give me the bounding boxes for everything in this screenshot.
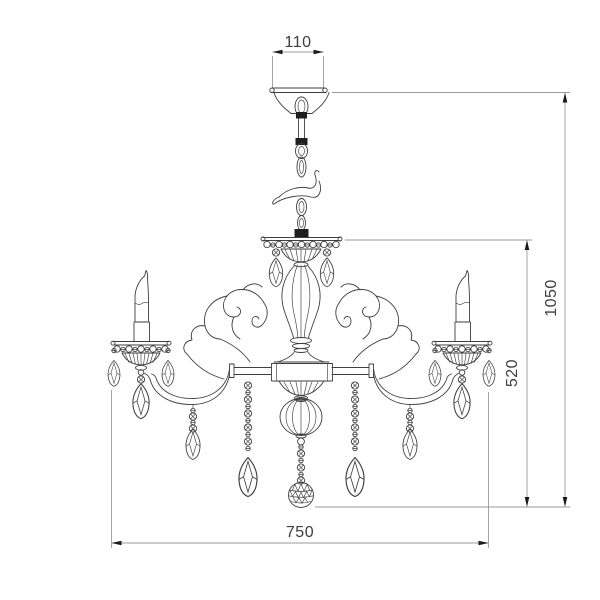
right-candle xyxy=(429,271,495,419)
faceted-ball-finial xyxy=(289,483,314,508)
center-hub xyxy=(272,364,333,401)
right-arm xyxy=(332,284,459,497)
melon-sphere xyxy=(280,398,322,450)
dimension-fixture-width: 750 xyxy=(112,390,489,548)
dim-body-height-value: 520 xyxy=(504,359,521,387)
dim-canopy-width-value: 110 xyxy=(284,34,311,51)
dimension-canopy-width: 110 xyxy=(273,34,324,88)
ceiling-canopy xyxy=(270,88,329,145)
dim-fixture-width-value: 750 xyxy=(286,524,314,541)
suspension-chain xyxy=(273,144,321,238)
left-candle xyxy=(108,271,174,419)
bead-chain-finial xyxy=(289,450,314,508)
left-arm xyxy=(145,284,272,497)
technical-drawing-canvas: 110 1050 520 750 xyxy=(0,0,600,600)
dim-total-height-value: 1050 xyxy=(543,279,560,317)
chandelier-drawing: 110 1050 520 750 xyxy=(0,0,600,600)
